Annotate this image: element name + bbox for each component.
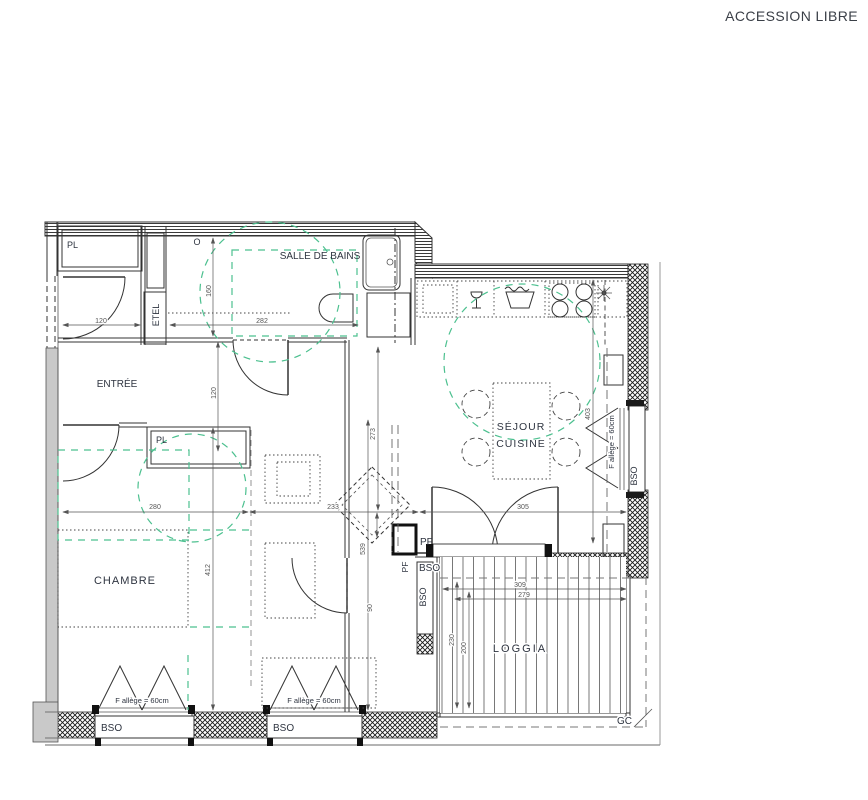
dim-loggia-depth-inner: 200	[461, 642, 468, 654]
label-pf-window: PF	[400, 562, 410, 573]
chair	[552, 392, 580, 420]
dim-middle-width: 233	[327, 504, 339, 511]
closet-pl-entree	[147, 427, 250, 468]
dim-door-width: 90	[367, 604, 374, 612]
chair	[462, 390, 490, 418]
bathtub-drain	[387, 259, 393, 265]
room-label-chambre: CHAMBRE	[94, 575, 156, 587]
shower-tray	[367, 293, 410, 337]
dim-loggia-depth-outer: 230	[449, 634, 456, 646]
dim-loggia-width-outer: 309	[514, 582, 526, 589]
dim-chambre-depth: 412	[205, 564, 212, 576]
turning-circle-bath	[200, 222, 340, 362]
room-label-entree: ENTRÉE	[97, 377, 138, 390]
desk	[265, 543, 315, 618]
dim-hall-width: 120	[211, 387, 218, 399]
gc-corner-tick	[634, 709, 652, 727]
hob-icon	[549, 283, 595, 317]
loggia-deck	[440, 557, 652, 727]
label-gc: GC	[617, 716, 632, 727]
chair	[462, 438, 490, 466]
loggia-door-swing-left	[432, 487, 498, 553]
sink-icon	[505, 287, 534, 308]
room-label-cuisine: CUISINE	[496, 438, 546, 450]
loggia-door-threshold	[433, 544, 545, 557]
radiator-bottom	[603, 524, 624, 557]
plan-drawing: SALLE DE BAINS ENTRÉE CHAMBRE SÉJOUR CUI…	[0, 0, 868, 800]
dim-sejour-depth-right: 403	[585, 408, 592, 420]
label-pl-top: PL	[67, 240, 78, 250]
label-bso-window1: BSO	[101, 723, 122, 734]
label-allege-window1: F allège = 60cm	[115, 696, 169, 705]
label-etel: ETEL	[151, 304, 161, 327]
floor-plan: ACCESSION LIBRE	[0, 0, 868, 800]
room-label-sejour: SÉJOUR	[497, 420, 546, 433]
glass-icon	[471, 292, 482, 308]
washbasin	[319, 294, 353, 322]
construction-lines	[251, 425, 410, 688]
dim-bath-width: 282	[256, 318, 268, 325]
dim-loggia-width-inner: 279	[518, 592, 530, 599]
concrete-column	[393, 525, 416, 554]
chambre-door-swing	[63, 425, 119, 481]
extractor-fan-icon	[596, 285, 612, 301]
label-bso-loggia-side: BSO	[418, 587, 428, 606]
bathtub	[363, 235, 400, 290]
room-label-salle-de-bains: SALLE DE BAINS	[280, 251, 361, 262]
sejour-door-swing	[292, 558, 347, 613]
bath-door-swing	[233, 340, 288, 395]
room-label-loggia: LOGGIA	[493, 643, 547, 655]
dim-chambre-width: 280	[149, 504, 161, 511]
kitchen-counter	[417, 281, 627, 317]
label-allege-window2: F allège = 60cm	[287, 696, 341, 705]
entry-door-swing	[63, 277, 125, 339]
label-bso-right-window: BSO	[629, 466, 639, 485]
fridge-icon	[423, 285, 453, 313]
dim-room-height: 539	[360, 543, 367, 555]
loggia-door-swing-right	[492, 487, 558, 553]
dim-sejour-depth-left: 273	[370, 428, 377, 440]
dim-sejour-width: 305	[517, 504, 529, 511]
label-bso-window2: BSO	[273, 723, 294, 734]
interior-walls	[58, 222, 437, 712]
label-o-marker: O	[193, 237, 200, 247]
dim-bath-depth: 160	[206, 285, 213, 297]
label-pf-door: PF	[420, 537, 433, 548]
dim-entry-width: 120	[95, 318, 107, 325]
label-allege-right-window: F allège = 60cm	[607, 415, 616, 469]
label-pl-entree: PL	[156, 435, 167, 445]
label-bso-door: BSO	[419, 563, 440, 574]
chair	[552, 438, 580, 466]
